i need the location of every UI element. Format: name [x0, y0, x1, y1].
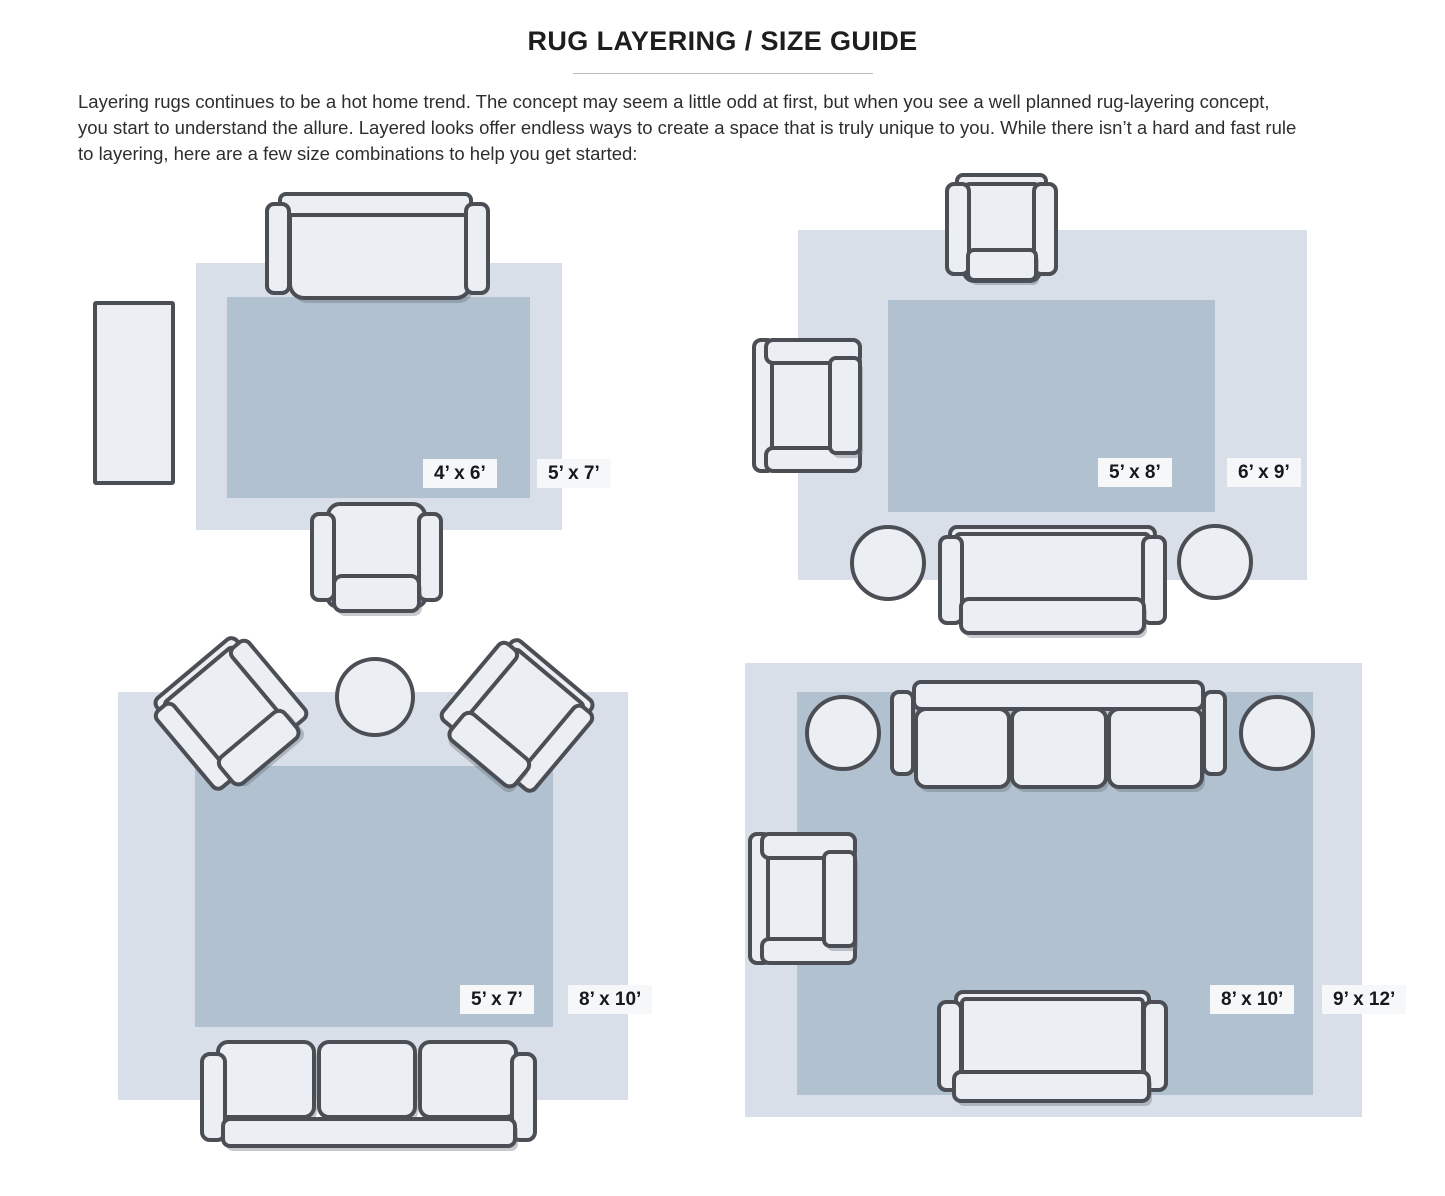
- sofa-arm-left: [890, 690, 915, 776]
- sofa-back: [912, 680, 1205, 711]
- sofa-seat: [288, 212, 472, 300]
- diagram-top-right: 5’ x 8’ 6’ x 9’: [740, 160, 1320, 660]
- page-title: RUG LAYERING / SIZE GUIDE: [0, 26, 1445, 57]
- diagram-bottom-right: 8’ x 10’ 9’ x 12’: [730, 650, 1420, 1130]
- sofa-cushion-2: [317, 1040, 417, 1119]
- pouf-left: [805, 695, 881, 771]
- pouf-right: [1239, 695, 1315, 771]
- intro-line-1: Layering rugs continues to be a hot home…: [78, 89, 1296, 115]
- console-table: [93, 301, 175, 485]
- intro-line-2: you start to understand the allure. Laye…: [78, 115, 1296, 141]
- pouf-right: [1177, 524, 1253, 600]
- rug-size-label-outer: 6’ x 9’: [1227, 458, 1301, 487]
- sofa-back: [278, 192, 473, 217]
- round-side-table: [335, 657, 415, 737]
- rug-size-label-inner: 5’ x 7’: [460, 985, 534, 1014]
- armchair-cushion: [828, 356, 862, 455]
- rug-size-label-inner: 8’ x 10’: [1210, 985, 1294, 1014]
- sofa-cushion-2: [1010, 707, 1108, 789]
- loveseat-front-cushion: [952, 1070, 1151, 1103]
- armchair-cushion: [332, 574, 421, 613]
- sofa-cushion-3: [1107, 707, 1204, 789]
- diagram-bottom-left: 5’ x 7’ 8’ x 10’: [100, 640, 660, 1160]
- sofa-front-rail: [221, 1117, 517, 1148]
- sofa-arm-left: [265, 202, 291, 295]
- rug-size-label-outer: 5’ x 7’: [537, 459, 611, 488]
- rug-size-label-inner: 5’ x 8’: [1098, 458, 1172, 487]
- rug-size-label-outer: 9’ x 12’: [1322, 985, 1406, 1014]
- sofa-cushion-1: [216, 1040, 316, 1119]
- diagram-top-left: 4’ x 6’ 5’ x 7’: [90, 170, 650, 630]
- intro-paragraph: Layering rugs continues to be a hot home…: [78, 89, 1296, 167]
- sofa-arm-right: [1202, 690, 1227, 776]
- sofa-arm-right: [464, 202, 490, 295]
- sofa-cushion-1: [914, 707, 1011, 789]
- armchair-cushion: [822, 850, 857, 948]
- sofa-cushion-3: [418, 1040, 518, 1119]
- sofa-front-cushion: [959, 597, 1146, 635]
- armchair-cushion: [966, 248, 1038, 282]
- rug-size-label-inner: 4’ x 6’: [423, 459, 497, 488]
- rug-size-label-outer: 8’ x 10’: [568, 985, 652, 1014]
- pouf-left: [850, 525, 926, 601]
- title-divider: [573, 73, 873, 74]
